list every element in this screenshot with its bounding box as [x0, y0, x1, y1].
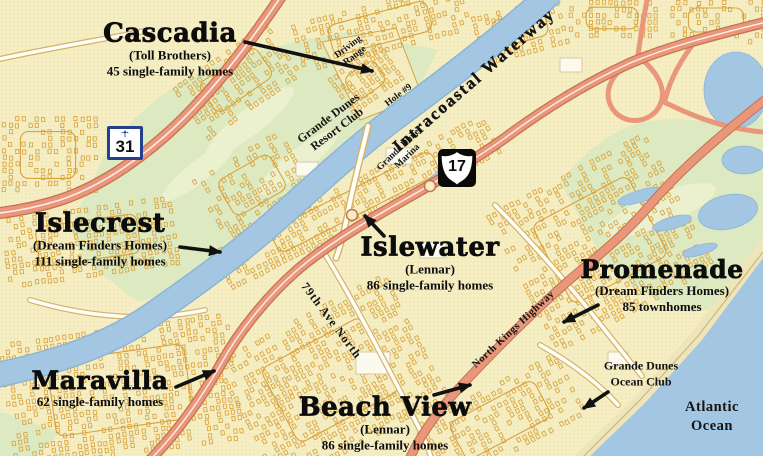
- sc-31-number: 31: [116, 138, 135, 155]
- us-17-shield: 17: [438, 149, 476, 187]
- map-canvas: Intracoastal Waterway Grande Dunes Resor…: [0, 0, 763, 456]
- community-cascadia-homes: 45 single-family homes: [103, 64, 237, 80]
- community-islewater-builder: (Lennar): [360, 262, 499, 278]
- community-promenade: Promenade (Dream Finders Homes) 85 townh…: [580, 257, 743, 315]
- community-islewater: Islewater (Lennar) 86 single-family home…: [360, 235, 499, 294]
- community-islewater-name: Islewater: [360, 235, 499, 262]
- community-maravilla-homes: 62 single-family homes: [32, 394, 169, 410]
- us-17-number: 17: [438, 158, 476, 176]
- community-beach-view-name: Beach View: [299, 395, 472, 422]
- community-cascadia-name: Cascadia: [103, 21, 237, 48]
- community-cascadia-builder: (Toll Brothers): [103, 48, 237, 64]
- community-islecrest-homes: 111 single-family homes: [33, 254, 167, 270]
- arrow-ocean-club: [584, 392, 608, 408]
- label-atlantic-ocean-line2: Ocean: [685, 417, 739, 436]
- community-maravilla: Maravilla 62 single-family homes: [32, 368, 169, 410]
- label-ocean-club: Grande Dunes Ocean Club: [604, 358, 678, 389]
- community-beach-view-builder: (Lennar): [299, 422, 472, 438]
- community-maravilla-name: Maravilla: [32, 368, 169, 394]
- community-promenade-name: Promenade: [580, 257, 743, 283]
- sc-31-shield: 31: [107, 126, 143, 160]
- community-islecrest: Islecrest (Dream Finders Homes) 111 sing…: [33, 211, 167, 270]
- label-atlantic-ocean-line1: Atlantic: [685, 398, 739, 417]
- label-ocean-club-line2: Ocean Club: [604, 374, 678, 390]
- community-islecrest-builder: (Dream Finders Homes): [33, 238, 167, 254]
- label-atlantic-ocean: Atlantic Ocean: [685, 398, 739, 436]
- community-beach-view: Beach View (Lennar) 86 single-family hom…: [299, 395, 472, 454]
- community-islewater-homes: 86 single-family homes: [360, 278, 499, 294]
- community-islecrest-name: Islecrest: [33, 211, 167, 238]
- community-promenade-homes: 85 townhomes: [580, 299, 743, 315]
- community-cascadia: Cascadia (Toll Brothers) 45 single-famil…: [103, 21, 237, 80]
- label-ocean-club-line1: Grande Dunes: [604, 358, 678, 374]
- community-beach-view-homes: 86 single-family homes: [299, 438, 472, 454]
- community-promenade-builder: (Dream Finders Homes): [580, 283, 743, 299]
